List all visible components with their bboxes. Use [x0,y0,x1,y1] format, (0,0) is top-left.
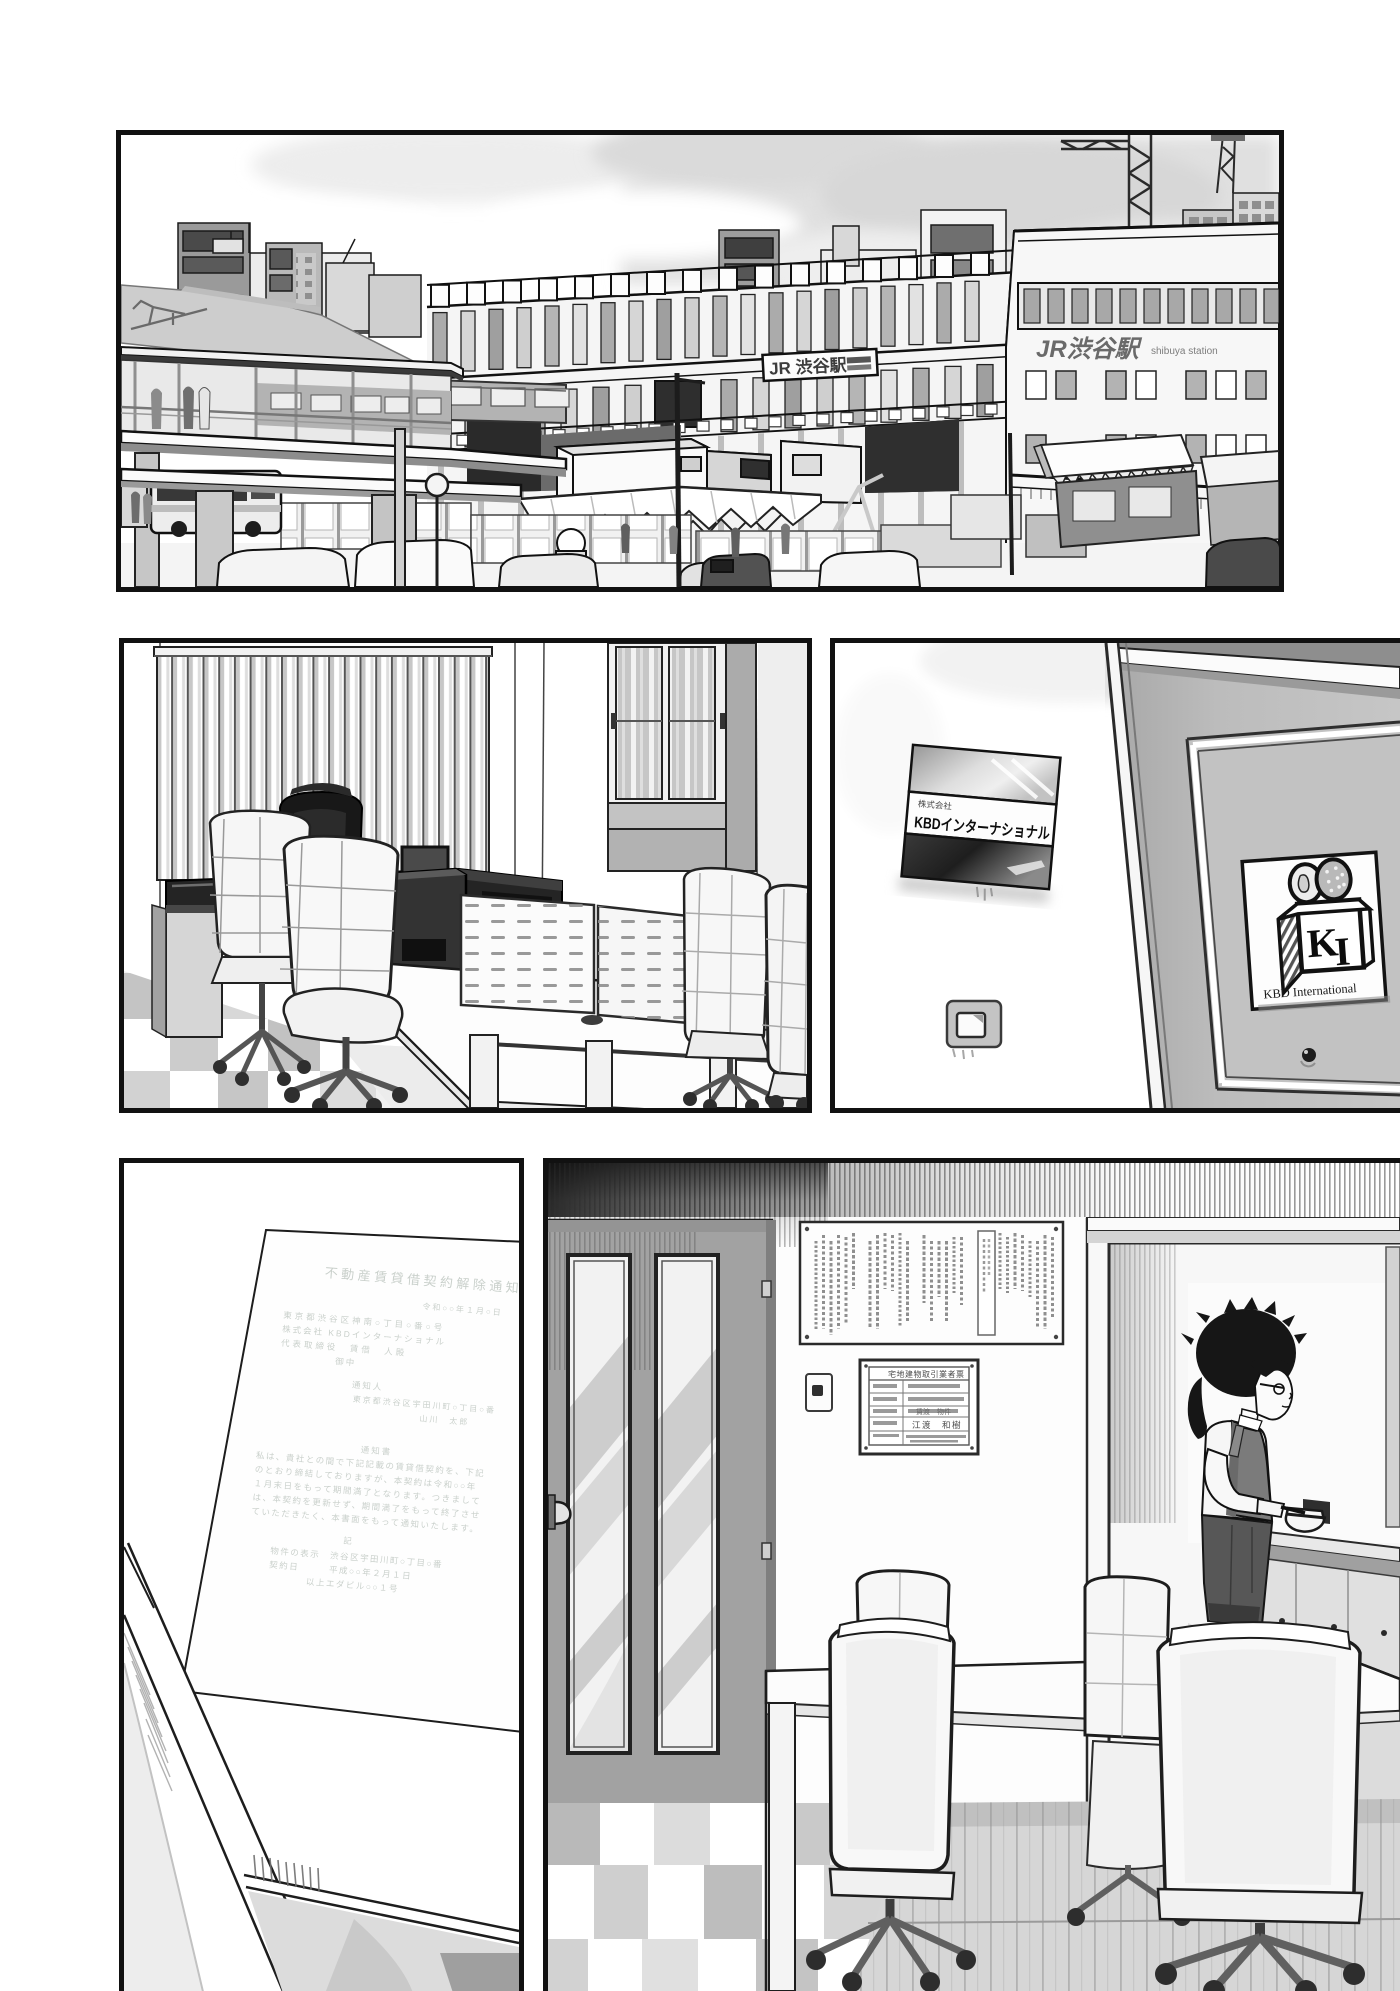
svg-text:江渡 和樹: 江渡 和樹 [912,1420,962,1430]
svg-text:宅地建物取引業者票: 宅地建物取引業者票 [888,1369,965,1379]
svg-text:記: 記 [343,1535,353,1546]
svg-text:JR 渋谷駅: JR 渋谷駅 [769,355,848,379]
svg-text:I: I [1333,928,1352,974]
svg-text:shibuya station: shibuya station [1151,346,1218,357]
svg-text:JR渋谷駅: JR渋谷駅 [1036,336,1143,363]
svg-text:賃渡 物件: 賃渡 物件 [916,1407,951,1416]
